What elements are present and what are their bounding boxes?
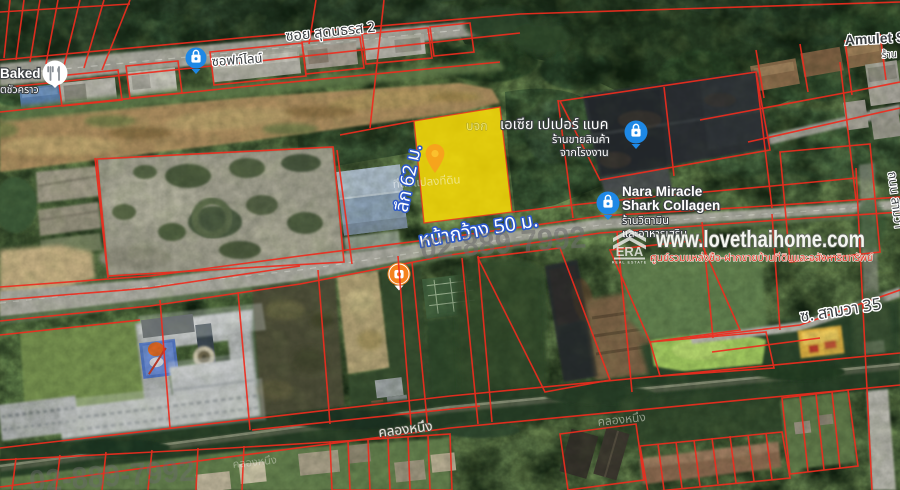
svg-text:Baked: Baked [0, 66, 41, 81]
svg-text:ERA: ERA [616, 244, 644, 259]
svg-text:REAL ESTATE: REAL ESTATE [612, 261, 647, 265]
svg-text:Nara Miracle: Nara Miracle [622, 184, 703, 199]
svg-text:Amulet S: Amulet S [844, 29, 900, 48]
svg-text:Shark Collagen: Shark Collagen [622, 198, 720, 213]
svg-text:www.lovethaihome.com: www.lovethaihome.com [655, 226, 865, 252]
